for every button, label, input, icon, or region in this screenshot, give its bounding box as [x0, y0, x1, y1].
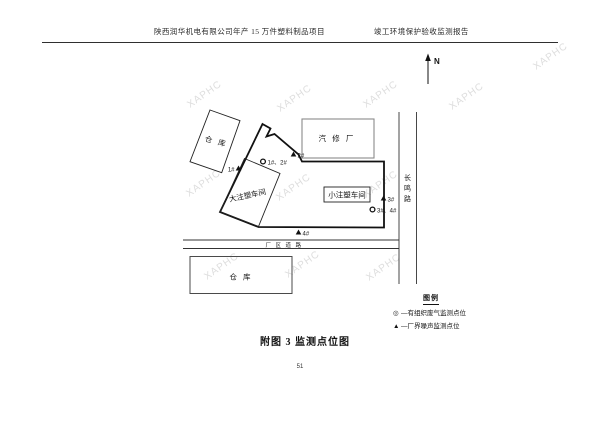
gas-circle-icon: [370, 207, 375, 212]
legend-item-noise-label: —厂界噪声监测点位: [401, 323, 460, 330]
legend-item-gas-label: —有组织废气监测点位: [401, 310, 466, 317]
gas-circle-icon: ◎: [393, 311, 401, 318]
changming-road-label-char2: 鸣: [404, 184, 411, 193]
site-plan-diagram: N 长 鸣 路 厂 区 道 路 仓 库 汽 修 厂 大注塑车间 小注塑车间 仓 …: [0, 0, 600, 424]
legend-item-gas: ◎—有组织废气监测点位: [393, 311, 533, 318]
auto-repair-plant-label: 汽 修 厂: [319, 133, 356, 143]
north-label: N: [434, 57, 440, 66]
changming-road-label-char3: 路: [404, 194, 411, 203]
warehouse-top-label: 仓 库: [204, 133, 229, 149]
noise-triangle-icon: [381, 196, 387, 201]
noise-point-1-label: 1#: [228, 168, 235, 174]
noise-point-4-label: 4#: [303, 232, 310, 238]
report-page: 陕西润华机电有限公司年产 15 万件塑料制品项目 竣工环境保护验收监测报告 XA…: [0, 0, 600, 424]
noise-point-2-label: 2#: [298, 154, 305, 160]
noise-triangle-icon: [296, 230, 302, 235]
warehouse-bottom-label: 仓 库: [229, 272, 252, 282]
gas-points-34-label: 3#、4#: [377, 209, 397, 215]
gas-circle-icon: [261, 159, 266, 164]
figure-caption: 附图 3 监测点位图: [0, 338, 600, 348]
changming-road-label-char1: 长: [404, 173, 411, 182]
noise-triangle-icon: ▲: [393, 324, 401, 331]
small-injection-workshop-label: 小注塑车间: [328, 190, 366, 200]
large-injection-workshop-label: 大注塑车间: [228, 186, 267, 204]
legend: 图例 ◎—有组织废气监测点位 ▲—厂界噪声监测点位: [393, 288, 533, 331]
legend-item-noise: ▲—厂界噪声监测点位: [393, 324, 533, 331]
noise-point-3-label: 3#: [388, 198, 395, 204]
legend-title: 图例: [423, 295, 439, 305]
page-number: 51: [0, 364, 600, 370]
north-arrow-icon: [425, 54, 431, 62]
factory-road-label: 厂 区 道 路: [265, 241, 302, 249]
gas-points-12-label: 1#、2#: [268, 161, 288, 167]
